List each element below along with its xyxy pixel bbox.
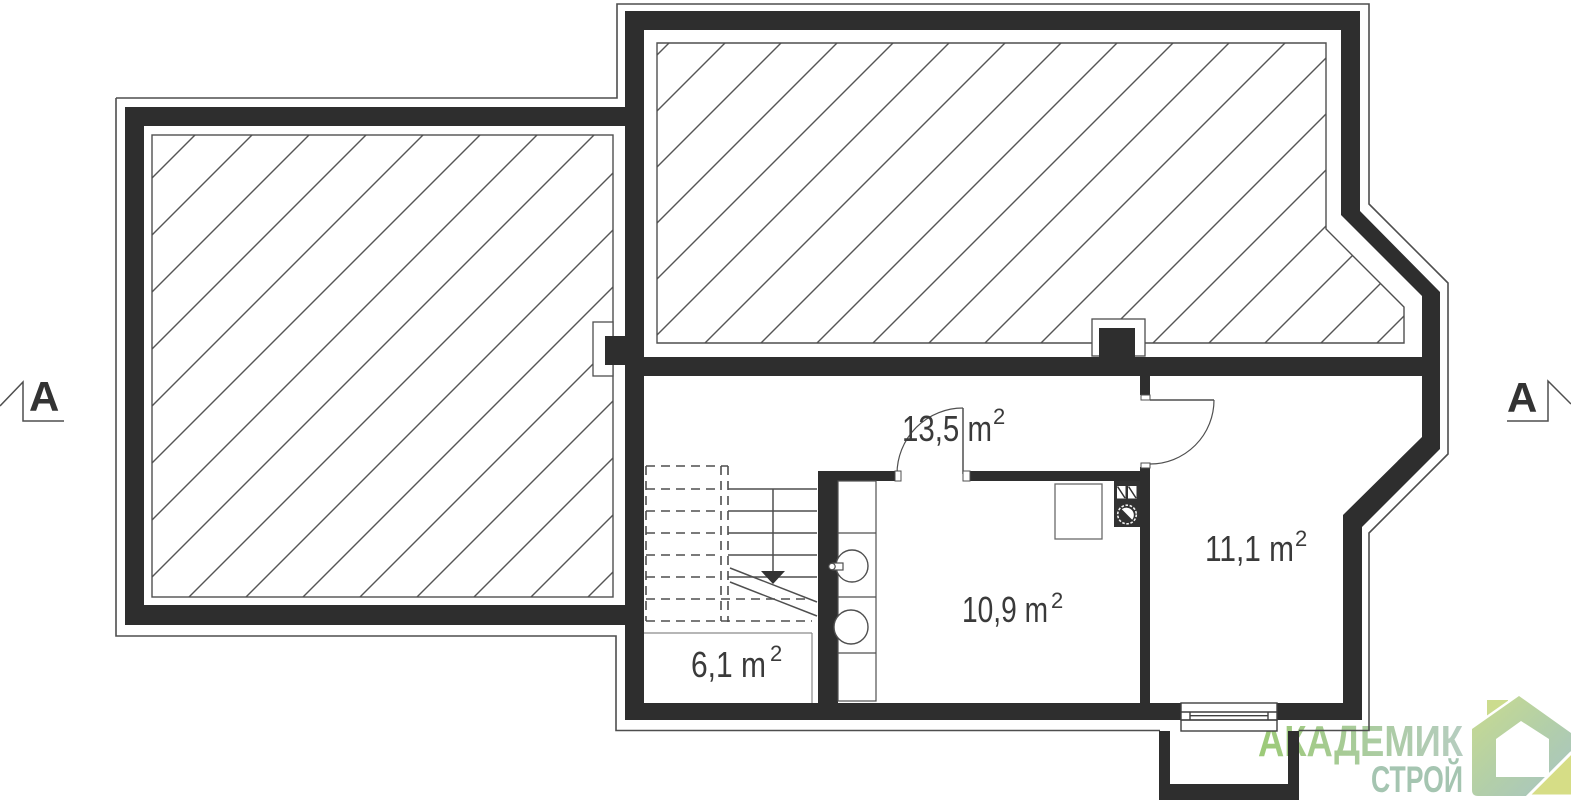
svg-text:11,1 m: 11,1 m [1205,528,1294,569]
svg-text:2: 2 [1051,588,1063,613]
svg-text:A: A [29,373,59,420]
svg-text:A: A [1507,374,1537,421]
svg-text:6,1 m: 6,1 m [691,644,766,685]
svg-text:2: 2 [993,404,1005,429]
svg-text:10,9 m: 10,9 m [962,589,1048,630]
svg-text:2: 2 [1295,526,1307,551]
svg-text:13,5 m: 13,5 m [902,408,992,449]
svg-text:СТРОЙ: СТРОЙ [1371,758,1463,800]
svg-text:2: 2 [770,641,782,666]
